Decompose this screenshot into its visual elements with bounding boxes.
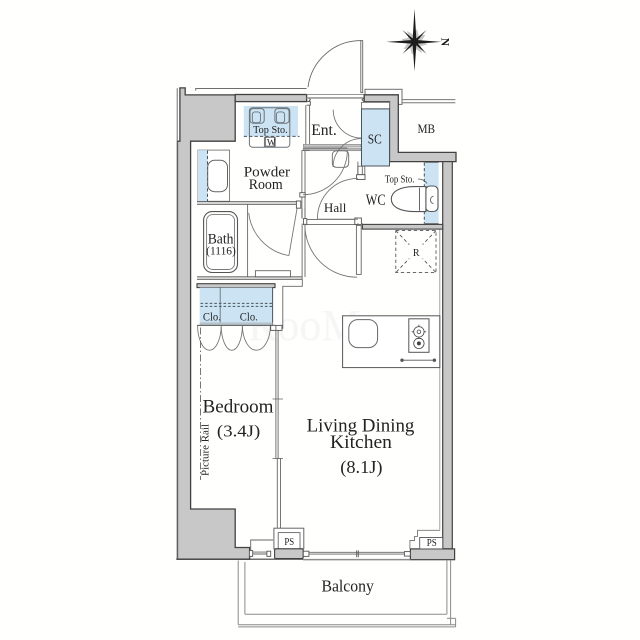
svg-text:Clo.: Clo. <box>240 309 258 323</box>
svg-text:Top Sto.: Top Sto. <box>385 173 415 185</box>
svg-text:PS: PS <box>427 538 437 549</box>
svg-text:(3.4J): (3.4J) <box>217 421 260 440</box>
svg-text:SC: SC <box>368 132 382 147</box>
svg-text:R: R <box>413 248 420 259</box>
svg-text:Hall: Hall <box>324 201 347 215</box>
svg-text:WC: WC <box>366 192 386 209</box>
svg-text:Room: Room <box>249 176 283 193</box>
svg-text:Bedroom: Bedroom <box>203 396 274 417</box>
svg-text:Balcony: Balcony <box>321 577 374 596</box>
svg-text:Kitchen: Kitchen <box>330 433 392 453</box>
svg-text:N: N <box>439 38 451 47</box>
svg-text:Top Sto.: Top Sto. <box>253 124 288 136</box>
svg-text:Picture Rail: Picture Rail <box>199 424 211 476</box>
svg-text:(8.1J): (8.1J) <box>340 457 382 478</box>
svg-text:Clo.: Clo. <box>203 309 221 323</box>
svg-text:MB: MB <box>418 122 436 136</box>
svg-text:W: W <box>267 138 276 148</box>
svg-text:Ent.: Ent. <box>311 122 337 139</box>
svg-text:PS: PS <box>284 537 294 548</box>
svg-text:(1116): (1116) <box>206 244 236 258</box>
